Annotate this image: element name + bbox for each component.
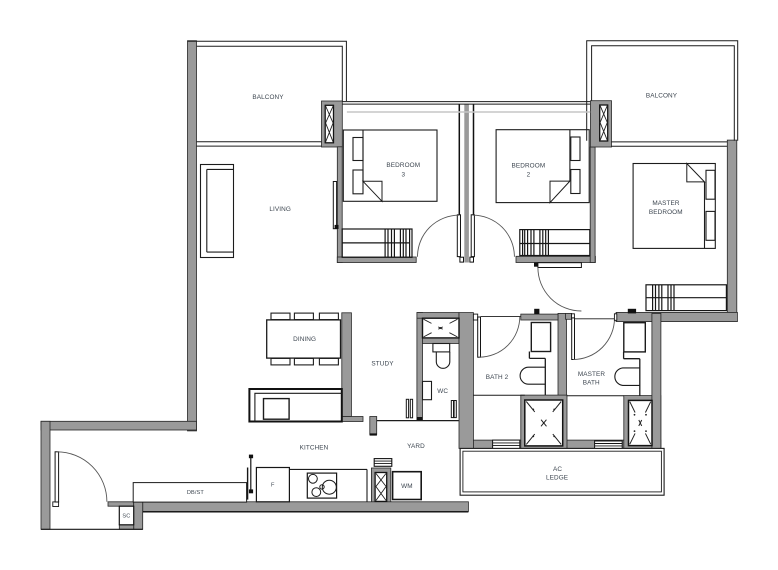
svg-text:MASTER: MASTER (578, 371, 606, 378)
svg-text:YARD: YARD (407, 443, 425, 450)
svg-text:WM: WM (401, 483, 413, 490)
svg-text:DINING: DINING (293, 336, 316, 343)
svg-text:KITCHEN: KITCHEN (300, 445, 329, 452)
svg-text:BEDROOM: BEDROOM (386, 162, 420, 169)
svg-text:AC: AC (553, 466, 562, 473)
svg-text:BALCONY: BALCONY (646, 93, 678, 100)
svg-text:3: 3 (401, 171, 405, 178)
svg-text:BATH 2: BATH 2 (486, 374, 509, 381)
svg-text:SC: SC (122, 513, 130, 519)
svg-text:MASTER: MASTER (652, 200, 680, 207)
svg-text:DB/ST: DB/ST (187, 490, 204, 496)
svg-text:LIVING: LIVING (269, 206, 291, 213)
svg-text:BEDROOM: BEDROOM (649, 209, 683, 216)
svg-text:2: 2 (527, 172, 531, 179)
svg-text:STUDY: STUDY (371, 361, 394, 368)
svg-text:WC: WC (437, 388, 448, 395)
svg-text:BEDROOM: BEDROOM (512, 163, 546, 170)
svg-text:BALCONY: BALCONY (252, 94, 284, 101)
svg-text:LEDGE: LEDGE (546, 475, 568, 482)
svg-text:BATH: BATH (583, 380, 600, 387)
svg-text:F: F (271, 483, 275, 489)
